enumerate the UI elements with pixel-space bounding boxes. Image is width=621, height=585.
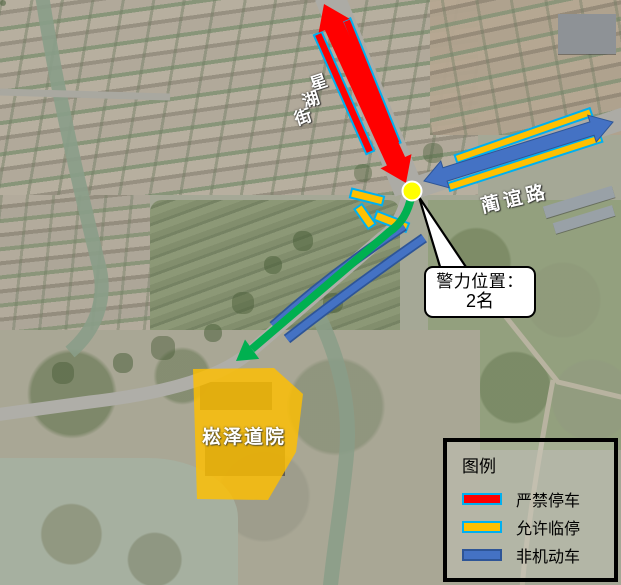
stream [318,315,348,585]
legend-item-non-motorized: 非机动车 [462,546,614,564]
legend-item-label: 非机动车 [516,543,580,567]
legend: 图例 严禁停车 允许临停 非机动车 [443,438,618,582]
traffic-plan-map: 星 湖 街 蔺谊路 崧泽道院 警力位置： 2名 图例 严禁停车 允许临停 非机动… [0,0,621,585]
callout-tail [419,197,468,270]
blue-two-way-arrow [424,115,613,188]
temple-area-label: 崧泽道院 [202,422,286,449]
temp-parking-bar [350,189,384,206]
police-callout-title: 警力位置： [436,272,524,292]
legend-item-temp-parking: 允许临停 [462,518,614,536]
river [42,0,102,352]
police-position-marker [403,182,422,201]
minor-road [0,92,170,97]
legend-item-no-parking: 严禁停车 [462,490,614,508]
temp-parking-swatch [462,521,502,533]
legend-title: 图例 [462,452,614,477]
legend-item-label: 严禁停车 [516,487,580,511]
red-two-way-arrow [319,4,412,183]
police-callout: 警力位置： 2名 [424,266,536,318]
legend-item-label: 允许临停 [516,515,580,539]
temp-parking-bar [354,204,375,229]
police-callout-count: 2名 [466,291,494,312]
non-motorized-swatch [462,549,502,561]
no-parking-swatch [462,493,502,505]
